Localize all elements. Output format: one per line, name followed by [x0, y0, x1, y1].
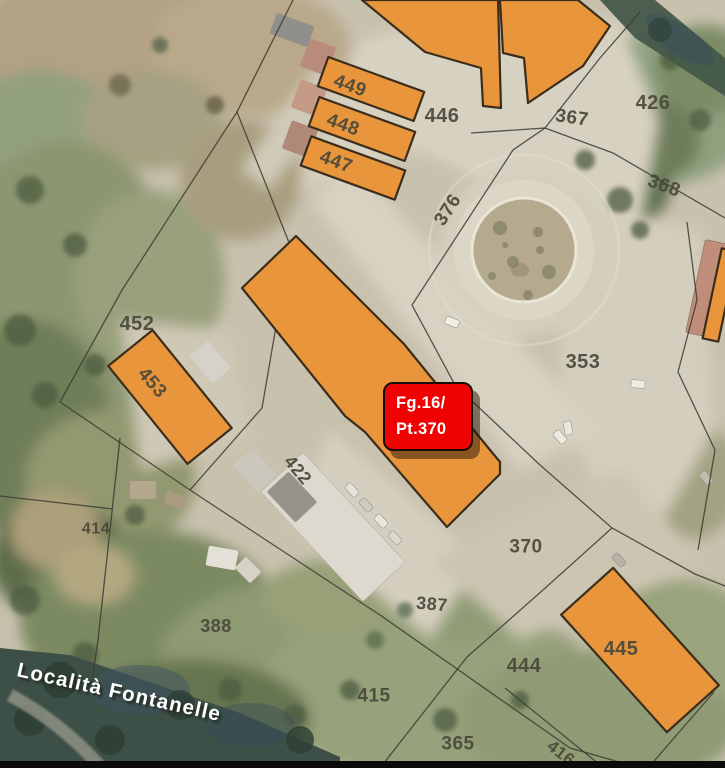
marker-line1: Fg.16/ [396, 390, 471, 416]
cadastral-map-image: 4494484474464263673683763534524534224143… [0, 0, 725, 768]
parcel-label-445: 445 [604, 638, 639, 660]
parcel-label-365: 365 [441, 734, 474, 755]
parcel-label-370: 370 [509, 537, 542, 558]
parcel-label-446: 446 [425, 105, 460, 127]
roundabout [429, 155, 619, 345]
parcel-label-353: 353 [566, 351, 601, 373]
parcel-label-444: 444 [507, 655, 542, 677]
parcel-label-414: 414 [82, 521, 110, 538]
parcel-label-387: 387 [415, 593, 448, 616]
bottom-black-bar [0, 761, 725, 768]
parcel-label-426: 426 [636, 92, 671, 114]
parcel-label-452: 452 [120, 313, 155, 335]
map-canvas: 4494484474464263673683763534524534224143… [0, 0, 725, 768]
cadastral-marker: Fg.16/ Pt.370 [383, 382, 473, 451]
parcel-label-388: 388 [200, 616, 232, 636]
marker-line2: Pt.370 [396, 416, 471, 442]
parcel-label-415: 415 [357, 686, 390, 707]
